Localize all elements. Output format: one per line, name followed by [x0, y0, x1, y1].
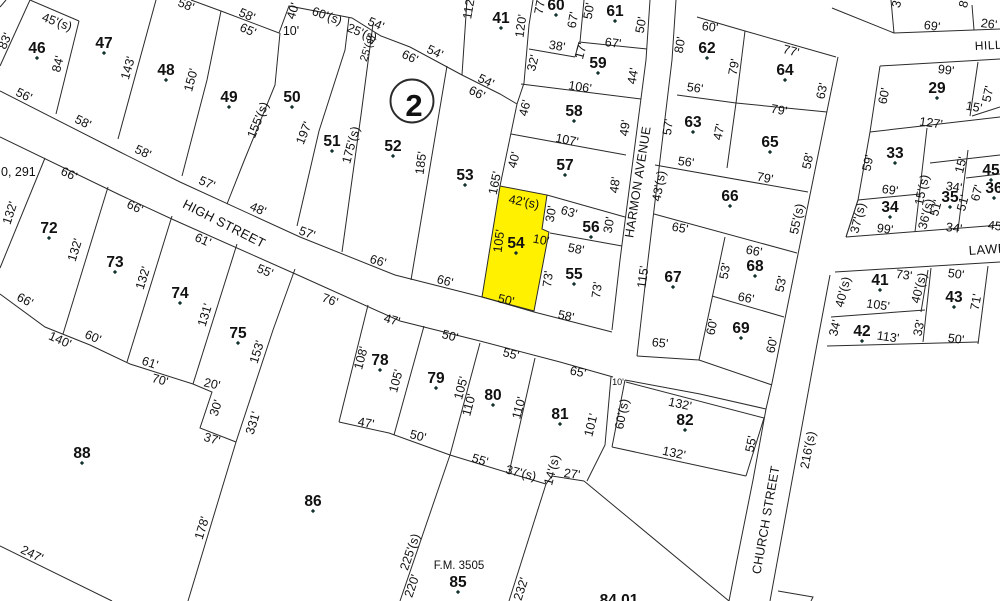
svg-text:46: 46	[28, 40, 46, 57]
svg-text:45: 45	[982, 162, 1000, 179]
svg-text:65': 65'	[651, 335, 669, 351]
svg-text:63: 63	[684, 114, 702, 131]
svg-text:66: 66	[721, 188, 739, 205]
svg-text:41: 41	[871, 272, 889, 289]
svg-text:57': 57'	[660, 118, 676, 136]
svg-text:74: 74	[171, 285, 189, 302]
svg-text:62: 62	[698, 40, 715, 57]
svg-text:53': 53'	[717, 262, 734, 280]
svg-text:79': 79'	[770, 102, 788, 119]
svg-text:84.01: 84.01	[600, 592, 639, 601]
svg-text:78: 78	[371, 352, 389, 369]
svg-text:52: 52	[384, 138, 401, 155]
svg-text:F.M. 3505: F.M. 3505	[434, 560, 485, 572]
svg-text:73': 73'	[540, 270, 556, 288]
svg-text:30': 30'	[543, 205, 560, 223]
svg-text:82: 82	[676, 412, 693, 429]
svg-text:99': 99'	[937, 62, 955, 78]
svg-text:72: 72	[40, 220, 57, 237]
svg-text:48': 48'	[607, 176, 623, 194]
svg-text:80: 80	[484, 387, 501, 404]
svg-text:185': 185'	[413, 151, 430, 176]
svg-text:26': 26'	[980, 16, 998, 32]
svg-text:35: 35	[941, 189, 959, 206]
svg-text:59: 59	[589, 55, 607, 72]
svg-text:43: 43	[945, 289, 963, 306]
svg-text:56': 56'	[677, 154, 695, 170]
svg-text:34': 34'	[945, 220, 963, 236]
svg-text:56: 56	[582, 219, 600, 236]
svg-text:73': 73'	[895, 267, 913, 283]
svg-text:75: 75	[229, 325, 247, 342]
svg-text:50': 50'	[947, 266, 965, 282]
svg-text:81: 81	[551, 406, 569, 423]
svg-text:51: 51	[323, 133, 341, 150]
svg-text:50': 50'	[581, 2, 598, 20]
svg-text:86: 86	[304, 493, 322, 510]
svg-text:2: 2	[405, 88, 422, 123]
svg-text:73': 73'	[589, 281, 605, 299]
svg-text:77': 77'	[532, 0, 549, 15]
svg-text:45': 45'	[987, 218, 1000, 234]
svg-text:53: 53	[456, 167, 474, 184]
svg-text:50': 50'	[633, 16, 650, 34]
svg-text:57: 57	[556, 157, 573, 174]
svg-text:65': 65'	[671, 220, 689, 237]
svg-text:88: 88	[73, 445, 91, 462]
svg-text:67': 67'	[604, 35, 622, 51]
svg-text:27': 27'	[563, 466, 581, 482]
svg-text:47: 47	[95, 35, 112, 52]
svg-text:42: 42	[853, 323, 870, 340]
svg-text:66': 66'	[737, 290, 755, 307]
svg-text:36: 36	[985, 180, 1000, 197]
svg-text:79: 79	[427, 370, 445, 387]
svg-text:50': 50'	[947, 331, 965, 347]
svg-text:99': 99'	[876, 221, 894, 237]
svg-text:50: 50	[283, 89, 300, 106]
svg-text:105': 105'	[491, 229, 508, 254]
svg-text:73: 73	[106, 254, 124, 271]
svg-text:69': 69'	[923, 18, 941, 34]
svg-text:67: 67	[664, 269, 681, 286]
svg-text:69': 69'	[881, 182, 899, 198]
svg-text:64: 64	[776, 62, 794, 79]
svg-text:0, 291: 0, 291	[1, 165, 36, 179]
svg-text:80': 80'	[672, 36, 689, 54]
svg-text:33: 33	[886, 145, 904, 162]
svg-text:HILLSIDE: HILLSIDE	[974, 36, 1000, 53]
svg-text:54: 54	[507, 235, 525, 252]
svg-text:38': 38'	[548, 38, 566, 54]
svg-text:30': 30'	[601, 216, 618, 234]
svg-text:49: 49	[220, 89, 238, 106]
svg-text:10': 10'	[283, 24, 299, 38]
svg-text:71': 71'	[968, 293, 985, 311]
svg-text:56': 56'	[686, 80, 704, 96]
svg-text:67': 67'	[565, 11, 582, 29]
svg-text:69: 69	[732, 320, 750, 337]
svg-text:68: 68	[746, 258, 764, 275]
svg-text:85: 85	[449, 574, 467, 591]
svg-text:79': 79'	[726, 58, 743, 76]
svg-text:15': 15'	[965, 99, 983, 116]
svg-text:44': 44'	[625, 67, 642, 85]
svg-text:34: 34	[881, 199, 899, 216]
svg-text:55: 55	[565, 266, 583, 283]
svg-text:60': 60'	[701, 19, 719, 35]
svg-text:29: 29	[928, 80, 946, 97]
svg-text:60: 60	[547, 0, 564, 14]
svg-text:49': 49'	[617, 119, 633, 137]
svg-text:10': 10'	[612, 377, 624, 387]
svg-text:58: 58	[565, 103, 583, 120]
svg-text:47': 47'	[357, 415, 375, 432]
svg-text:65: 65	[761, 134, 779, 151]
svg-text:48: 48	[157, 62, 175, 79]
svg-text:61: 61	[606, 3, 624, 20]
svg-text:41: 41	[492, 10, 510, 27]
